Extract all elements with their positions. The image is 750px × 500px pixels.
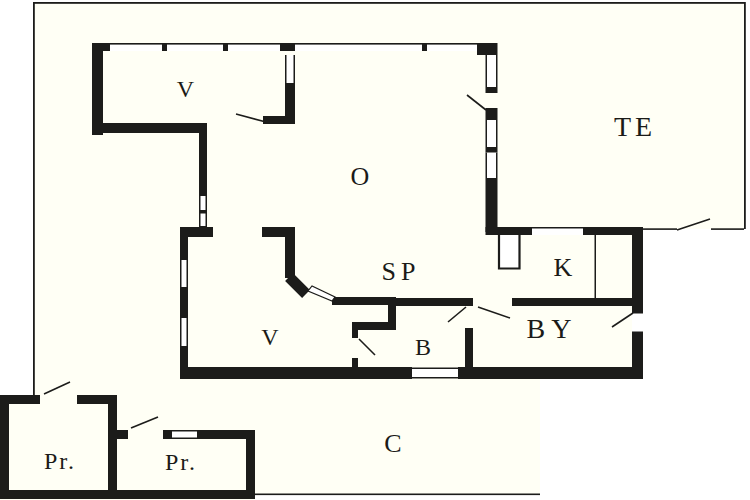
room-label-o: O — [351, 162, 370, 191]
wall-segment — [352, 330, 358, 338]
wall-segment — [180, 287, 188, 318]
terrace-edge-line — [643, 228, 677, 230]
window — [486, 55, 498, 87]
window-frame-line — [187, 318, 189, 346]
room-label-by: BY — [527, 313, 578, 344]
window — [486, 120, 498, 147]
window-frame-line — [496, 153, 498, 179]
wall-segment — [280, 43, 295, 51]
window-frame-line — [632, 312, 643, 314]
wall-segment — [262, 227, 295, 237]
wall-segment — [108, 490, 255, 499]
window-frame-line — [496, 120, 498, 147]
wall-segment — [180, 227, 213, 237]
wall-segment — [465, 328, 473, 379]
wall-segment — [0, 395, 40, 404]
terrace-edge-line — [711, 228, 744, 230]
wall-segment — [108, 395, 117, 499]
wall-segment — [486, 227, 533, 235]
wall-segment — [486, 87, 498, 93]
site-boundary-right — [744, 2, 746, 229]
room-label-te: TE — [614, 111, 656, 142]
wall-segment — [332, 297, 396, 305]
wall-segment — [163, 430, 172, 439]
wall-segment — [422, 43, 427, 51]
wall-segment — [223, 43, 228, 51]
room-label-b: B — [415, 334, 431, 360]
wall-segment — [92, 123, 207, 133]
wall-segment — [162, 43, 167, 51]
wall-segment — [632, 235, 643, 312]
window-frame-line — [632, 332, 643, 334]
wall-segment — [0, 490, 117, 499]
window-frame-line — [285, 55, 287, 83]
wall-segment — [458, 367, 643, 379]
window-frame-line — [187, 260, 189, 287]
room-label-c: C — [384, 429, 401, 458]
wall-segment — [352, 322, 396, 330]
window-frame-line — [412, 377, 458, 379]
window-frame-line — [172, 438, 197, 440]
wall-segment — [583, 227, 643, 235]
window-frame-line — [172, 430, 197, 432]
wall-segment — [512, 298, 632, 306]
room-label-pr-1: Pr. — [44, 448, 76, 474]
floor-plan: V O TE SP K V B BY C Pr. Pr. — [0, 0, 750, 500]
wall-segment — [0, 395, 9, 499]
window — [486, 153, 498, 179]
wall-segment — [246, 430, 255, 499]
window-frame-line — [180, 318, 182, 346]
room-label-v-lower: V — [261, 324, 279, 350]
room-label-pr-2: Pr. — [165, 449, 197, 475]
room-label-k: K — [554, 253, 573, 282]
site-boundary-left — [33, 2, 35, 395]
window-frame-line — [486, 153, 488, 179]
floor-plan-canvas: V O TE SP K V B BY C Pr. Pr. — [0, 0, 750, 500]
wall-partition-thin — [595, 233, 597, 303]
site-boundary-top — [33, 2, 744, 4]
window-frame-line — [532, 227, 583, 229]
fireplace-symbol — [499, 235, 520, 269]
wall-segment — [477, 43, 498, 55]
wall-segment — [180, 367, 412, 379]
wall-segment — [396, 298, 473, 306]
wall-segment — [92, 43, 103, 135]
carport-edge-line — [255, 494, 540, 496]
wall-segment — [486, 108, 498, 120]
wall-segment — [199, 133, 207, 196]
wall-segment — [199, 210, 207, 214]
door-slot — [632, 312, 643, 333]
window-frame-line — [486, 120, 488, 147]
window-frame-line — [412, 368, 458, 370]
window-frame-line — [294, 55, 296, 83]
wall-segment — [486, 178, 498, 232]
window — [172, 431, 197, 439]
room-label-v-upper: V — [177, 76, 195, 102]
wall-segment — [486, 147, 498, 153]
wall-segment — [352, 358, 358, 379]
wall-segment — [117, 430, 128, 439]
window-frame-line — [486, 55, 488, 87]
window — [412, 368, 458, 378]
wall-segment — [180, 346, 188, 379]
wall-segment — [285, 237, 295, 278]
wall-segment — [263, 116, 295, 124]
window-frame-line — [496, 55, 498, 87]
room-label-sp: SP — [382, 257, 421, 286]
window-frame-line — [180, 260, 182, 287]
